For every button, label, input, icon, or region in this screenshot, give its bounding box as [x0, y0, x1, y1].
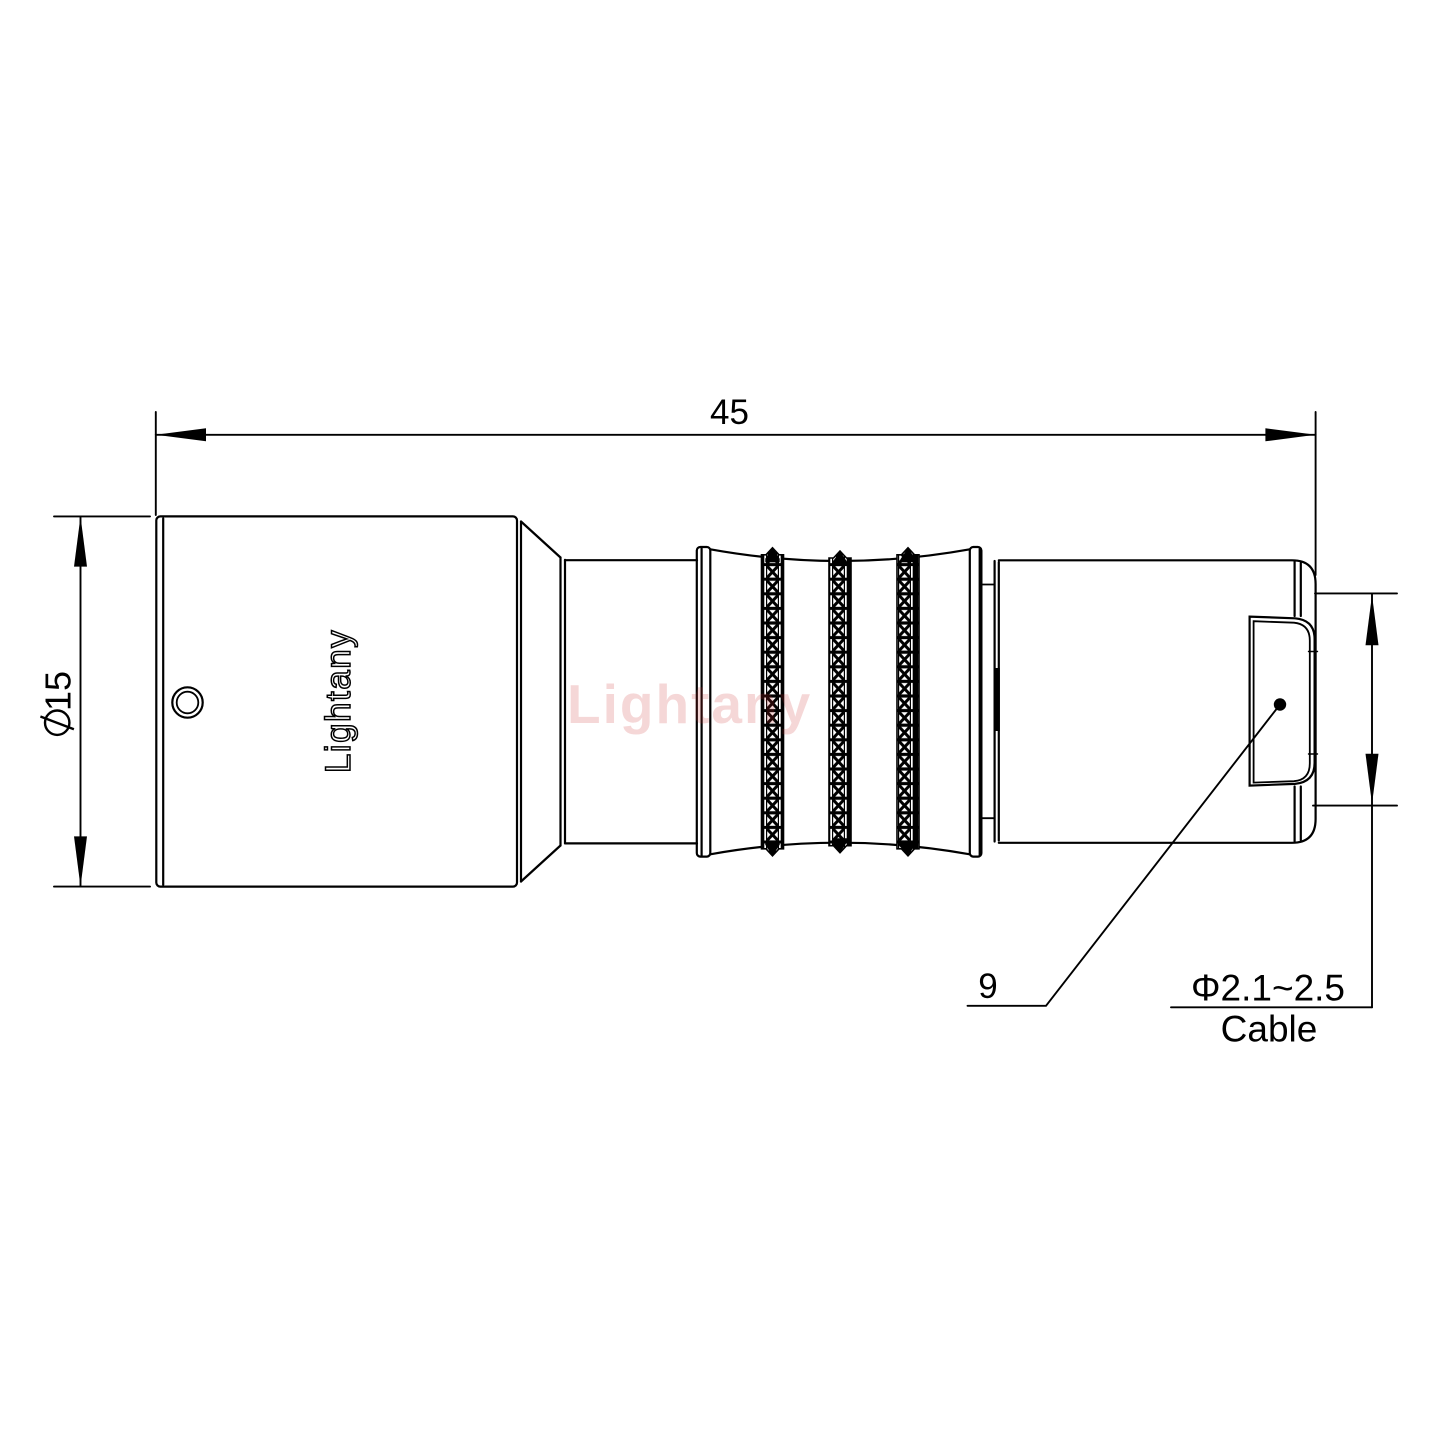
svg-text:Lightany: Lightany	[319, 629, 358, 773]
svg-text:9: 9	[978, 967, 997, 1006]
svg-text:Φ2.1~2.5: Φ2.1~2.5	[1191, 968, 1345, 1009]
svg-text:15: 15	[38, 671, 79, 711]
svg-text:45: 45	[710, 393, 749, 432]
svg-text:Cable: Cable	[1221, 1009, 1318, 1050]
svg-text:Lightany: Lightany	[567, 673, 812, 735]
